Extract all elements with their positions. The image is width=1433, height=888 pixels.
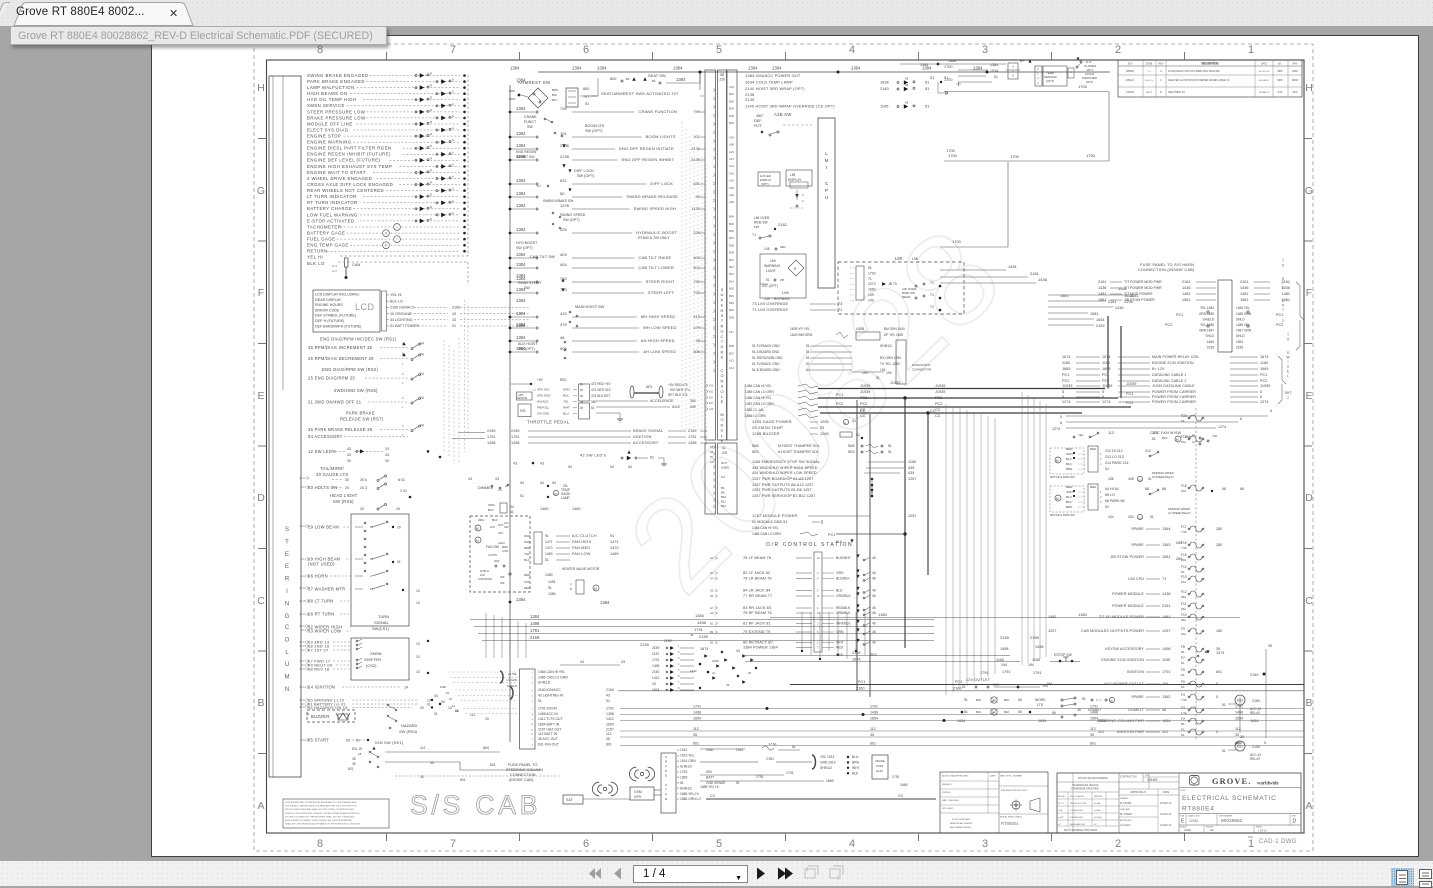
svg-text:1: 1 <box>402 362 404 366</box>
svg-text:R: R <box>430 144 432 148</box>
svg-text:1700: 1700 <box>944 78 952 82</box>
svg-text:1257 PWR OUTPUTS A6-A10 1257: 1257 PWR OUTPUTS A6-A10 1257 <box>752 483 814 487</box>
svg-text:T: T <box>1282 308 1284 312</box>
svg-text:2160: 2160 <box>452 306 460 310</box>
svg-text:1257: 1257 <box>908 514 916 518</box>
svg-text:B26: B26 <box>709 385 714 388</box>
svg-text:A26: A26 <box>729 186 734 190</box>
svg-text:5A: 5A <box>1181 722 1185 726</box>
svg-text:21 2WD ON/4WD OFF 21: 21 2WD ON/4WD OFF 21 <box>308 399 362 404</box>
svg-text:TITLE: TITLE <box>1180 790 1186 792</box>
svg-text:L: L <box>285 650 289 656</box>
svg-text:1581: 1581 <box>1098 298 1106 302</box>
svg-text:1384: 1384 <box>516 597 526 602</box>
svg-text:1481: 1481 <box>1282 292 1290 296</box>
svg-text:26 RPM/DIAG DECREMENT 26: 26 RPM/DIAG DECREMENT 26 <box>308 356 374 361</box>
svg-text:RT600 & 700 ONLY: RT600 & 700 ONLY <box>638 236 670 240</box>
svg-text:2A: 2A <box>712 671 715 675</box>
svg-text:J1939: J1939 <box>860 390 870 394</box>
svg-text:68: 68 <box>1162 487 1166 491</box>
svg-text:C-1: C-1 <box>1147 71 1151 73</box>
svg-text:1: 1 <box>678 645 680 648</box>
svg-text:DEF SYMBOL (FUTURE): DEF SYMBOL (FUTURE) <box>315 314 356 318</box>
svg-text:F8: F8 <box>1181 645 1185 649</box>
svg-text:1384: 1384 <box>851 66 861 71</box>
svg-text:601: 601 <box>870 742 876 746</box>
svg-text:A: A <box>452 162 454 166</box>
svg-text:350: 350 <box>591 400 597 404</box>
svg-text:3: 3 <box>982 44 988 56</box>
svg-text:6: 6 <box>402 372 404 376</box>
svg-text:194: 194 <box>1162 682 1168 686</box>
svg-text:SEE SHEET #3: SEE SHEET #3 <box>1168 91 1185 94</box>
svg-text:BLK: BLK <box>1162 436 1168 440</box>
svg-text:O: O <box>1282 264 1285 268</box>
svg-text:35: 35 <box>1268 644 1272 648</box>
svg-text:BRN: BRN <box>509 89 515 93</box>
svg-text:28 RT TURN: 28 RT TURN <box>308 611 334 616</box>
svg-text:IN.DIM: IN.DIM <box>1058 796 1065 798</box>
svg-text:51: 51 <box>994 75 998 79</box>
svg-text:145: 145 <box>764 247 770 251</box>
svg-text:200828: 200828 <box>601 200 1029 620</box>
svg-text:I: I <box>826 165 827 170</box>
svg-text:V: V <box>1287 365 1290 369</box>
svg-text:91: 91 <box>610 534 614 538</box>
svg-text:SHT3: SHT3 <box>1146 92 1152 94</box>
svg-text:RED: RED <box>836 653 844 657</box>
svg-text:51 MODULE GND 51: 51 MODULE GND 51 <box>752 520 787 524</box>
svg-text:REV: REV <box>1292 816 1297 818</box>
svg-text:112 BATT IN: 112 BATT IN <box>538 732 558 736</box>
svg-text:1485 CAN LO GRN: 1485 CAN LO GRN <box>745 390 774 394</box>
svg-text:1384: 1384 <box>516 106 526 111</box>
svg-text:SHIELD: SHIELD <box>538 681 551 685</box>
svg-text:DATE: DATE <box>990 775 996 778</box>
svg-text:1914 GRN: 1914 GRN <box>680 759 696 763</box>
svg-text:35: 35 <box>870 733 874 737</box>
svg-text:1581: 1581 <box>1090 312 1098 316</box>
svg-text:SHIELD: SHIELD <box>680 765 693 769</box>
svg-text:1498: 1498 <box>1162 647 1170 651</box>
svg-text:1654: 1654 <box>1096 318 1104 322</box>
svg-text:11: 11 <box>531 729 534 731</box>
svg-text:43: 43 <box>726 683 730 687</box>
svg-text:1481: 1481 <box>1098 292 1106 296</box>
svg-text:D: D <box>1160 91 1162 94</box>
svg-text:OTHERWISE SPECIFIED: OTHERWISE SPECIFIED <box>1071 788 1099 791</box>
svg-text:LMI: LMI <box>790 173 795 177</box>
svg-text:601: 601 <box>460 778 466 782</box>
svg-text:1436: 1436 <box>1240 286 1248 290</box>
svg-text:GEAR DISPLAY: GEAR DISPLAY <box>315 298 342 302</box>
svg-text:PC1: PC1 <box>858 680 865 684</box>
svg-text:F: F <box>1306 287 1312 299</box>
svg-text:PC1: PC1 <box>1062 373 1069 377</box>
svg-text:1700: 1700 <box>952 239 962 244</box>
svg-text:2: 2 <box>678 651 680 654</box>
svg-text:WARNING: WARNING <box>764 264 781 268</box>
svg-text:RED: RED <box>836 646 844 650</box>
svg-text:1481: 1481 <box>1182 292 1190 296</box>
svg-text:(OPT): (OPT) <box>761 182 769 186</box>
svg-text:G: G <box>1305 185 1313 197</box>
svg-text:4: 4 <box>849 838 855 850</box>
svg-text:PC1: PC1 <box>955 680 962 684</box>
svg-text:212 HI 212: 212 HI 212 <box>1105 449 1123 453</box>
svg-text:46: 46 <box>872 556 876 560</box>
svg-text:APV: APV <box>1293 63 1298 66</box>
svg-text:43: 43 <box>347 453 351 457</box>
svg-text:G: G <box>257 185 265 197</box>
svg-text:601: 601 <box>1216 670 1222 674</box>
svg-text:601: 601 <box>693 742 699 746</box>
svg-text:F: F <box>258 287 264 299</box>
svg-text:1654: 1654 <box>957 719 965 723</box>
svg-text:1469: 1469 <box>610 552 618 556</box>
svg-text:REAR WHEELS NOT CENTERED: REAR WHEELS NOT CENTERED <box>307 188 384 193</box>
svg-text:GRN 1914: GRN 1914 <box>820 761 836 765</box>
svg-text:A: A <box>452 175 454 179</box>
svg-text:USED: USED <box>721 466 730 470</box>
svg-text:LTS: LTS <box>1037 703 1044 707</box>
svg-text:1274: 1274 <box>1218 425 1226 429</box>
svg-text:A28: A28 <box>729 200 734 204</box>
svg-text:601: 601 <box>490 763 496 767</box>
svg-text:1700: 1700 <box>944 65 952 69</box>
svg-text:ICE (OPT): ICE (OPT) <box>762 284 778 288</box>
svg-text:IGN SW (SK1): IGN SW (SK1) <box>375 740 404 745</box>
svg-text:46: 46 <box>872 611 876 615</box>
svg-text:S: S <box>285 527 289 533</box>
svg-text:CONNECTION: CONNECTION <box>510 773 536 777</box>
svg-text:1436: 1436 <box>1115 306 1123 310</box>
svg-text:435 WNDSHLD WIPER HIGH SPEED: 435 WNDSHLD WIPER HIGH SPEED <box>752 466 818 470</box>
svg-text:BLK: BLK <box>492 518 498 522</box>
svg-text:1412: 1412 <box>690 669 697 673</box>
svg-text:ENG DIAG/RPM INC/DEC SW (RS1): ENG DIAG/RPM INC/DEC SW (RS1) <box>320 336 397 341</box>
svg-text:3: 3 <box>678 657 680 660</box>
svg-text:2136: 2136 <box>691 146 701 151</box>
svg-text:BRN: BRN <box>1066 467 1072 471</box>
svg-text:43: 43 <box>606 694 610 698</box>
svg-text:1469: 1469 <box>545 552 553 556</box>
svg-text:E: E <box>285 564 289 570</box>
svg-text:DATALINK CABLE 1: DATALINK CABLE 1 <box>1152 373 1186 377</box>
svg-text:A14: A14 <box>729 164 734 168</box>
svg-text:REAR STEER: REAR STEER <box>518 281 541 285</box>
svg-text:202: 202 <box>722 451 728 455</box>
svg-text:J1939: J1939 <box>935 384 945 388</box>
svg-text:SWING SPEED HIGH: SWING SPEED HIGH <box>634 206 677 211</box>
svg-text:1257: 1257 <box>1048 629 1056 633</box>
svg-text:A: A <box>452 199 454 203</box>
svg-text:43-4: 43-4 <box>301 628 307 632</box>
svg-text:A: A <box>665 792 667 796</box>
svg-text:180: 180 <box>1216 629 1222 633</box>
svg-text:1160: 1160 <box>996 658 1004 662</box>
svg-text:601: 601 <box>1090 742 1096 746</box>
svg-text:20 3: 20 3 <box>360 486 367 490</box>
svg-text:194: 194 <box>1042 684 1048 688</box>
svg-text:212: 212 <box>1145 449 1151 453</box>
svg-text:113: 113 <box>1152 431 1158 435</box>
svg-text:2: 2 <box>1282 319 1284 323</box>
svg-text:43: 43 <box>736 649 740 653</box>
svg-text:2135: 2135 <box>560 154 570 159</box>
svg-text:20: 20 <box>360 507 364 511</box>
svg-text:1269 BUZZER: 1269 BUZZER <box>752 431 780 436</box>
svg-text:ELECT SYS DIAG: ELECT SYS DIAG <box>307 127 349 132</box>
svg-text:B14: B14 <box>729 279 734 283</box>
svg-text:14: 14 <box>452 704 456 708</box>
svg-text:B07: B07 <box>729 236 734 240</box>
svg-text:1654: 1654 <box>1038 719 1046 723</box>
svg-text:R: R <box>285 577 290 583</box>
svg-text:43: 43 <box>468 477 472 481</box>
svg-text:82 LF JACK 82: 82 LF JACK 82 <box>743 571 770 575</box>
svg-text:E-STOP ACTIVATED: E-STOP ACTIVATED <box>307 218 354 223</box>
svg-text:1471: 1471 <box>610 540 618 544</box>
svg-text:1384: 1384 <box>516 178 526 183</box>
svg-text:2: 2 <box>1100 495 1102 499</box>
svg-text:SW (OPT): SW (OPT) <box>516 246 533 250</box>
svg-text:RX GRN 1290: RX GRN 1290 <box>880 356 901 360</box>
svg-text:508: 508 <box>752 443 759 448</box>
svg-text:435: 435 <box>1128 477 1134 481</box>
svg-text:112: 112 <box>693 727 699 731</box>
svg-text:RED: RED <box>524 586 531 590</box>
svg-text:4: 4 <box>1037 76 1039 80</box>
svg-text:7: 7 <box>450 838 456 850</box>
svg-text:793: 793 <box>693 290 700 295</box>
svg-text:ENG REGEN: ENG REGEN <box>516 150 537 154</box>
svg-text:81 RF JACK 81: 81 RF JACK 81 <box>743 622 771 626</box>
svg-text:REMOVE ALL BURRS: REMOVE ALL BURRS <box>950 822 973 825</box>
svg-text:STEER PRESSURE LOW: STEER PRESSURE LOW <box>307 109 366 114</box>
svg-text:AUX HOIST: AUX HOIST <box>518 342 538 346</box>
svg-text:30: 30 <box>345 478 349 482</box>
svg-text:1498: 1498 <box>1035 645 1043 649</box>
svg-text:707: 707 <box>583 95 589 99</box>
svg-text:1791: 1791 <box>1002 670 1010 674</box>
svg-text:43 LIGHTING IN: 43 LIGHTING IN <box>538 694 564 698</box>
svg-text:LCD DISPLAY INCLUDING:: LCD DISPLAY INCLUDING: <box>315 293 360 297</box>
svg-text:149: 149 <box>868 298 874 302</box>
svg-text:43-2: 43-2 <box>301 485 307 489</box>
svg-text:MAT'L SPEC. NUMBER: MAT'L SPEC. NUMBER <box>1000 775 1023 778</box>
svg-text:CAB TILT RAISE: CAB TILT RAISE <box>638 255 671 260</box>
svg-text:A: A <box>452 126 454 130</box>
svg-text:A8: A8 <box>905 77 909 81</box>
svg-text:DIAGNOSTIC: DIAGNOSTIC <box>912 363 932 367</box>
svg-text:B10: B10 <box>721 495 726 499</box>
svg-text:RED/BLK: RED/BLK <box>836 606 851 610</box>
svg-text:18: 18 <box>370 587 374 591</box>
svg-text:BUZZER: BUZZER <box>311 714 330 719</box>
svg-text:A: A <box>452 90 454 94</box>
svg-text:BRAKE SIGNAL: BRAKE SIGNAL <box>633 429 663 433</box>
svg-text:U: U <box>285 662 289 668</box>
svg-text:R: R <box>430 156 432 160</box>
svg-text:2159: 2159 <box>1096 324 1104 328</box>
svg-text:26K: 26K <box>500 581 505 585</box>
svg-text:1160: 1160 <box>1260 361 1268 365</box>
svg-text:1640 BM GRN: 1640 BM GRN <box>790 333 813 337</box>
svg-text:42-8: 42-8 <box>301 574 307 578</box>
svg-text:1481: 1481 <box>1240 292 1248 296</box>
svg-text:M: M <box>476 527 479 531</box>
svg-text:45: 45 <box>1162 708 1166 712</box>
svg-text:10: 10 <box>385 447 389 451</box>
svg-text:1674: 1674 <box>852 658 860 662</box>
svg-text:B27: B27 <box>709 402 714 405</box>
svg-text:7: 7 <box>817 647 819 650</box>
svg-text:DIFF LOCK: DIFF LOCK <box>574 169 594 173</box>
svg-text:SAT: SAT <box>566 798 574 802</box>
svg-text:A: A <box>1305 800 1312 812</box>
svg-text:37 WASHER MTR: 37 WASHER MTR <box>308 586 345 591</box>
svg-text:R: R <box>665 797 668 801</box>
svg-text:1686 LC GRN: 1686 LC GRN <box>745 414 766 418</box>
svg-text:R: R <box>430 108 432 112</box>
svg-text:194: 194 <box>993 683 999 687</box>
svg-text:1653: 1653 <box>868 288 876 292</box>
svg-text:R: R <box>430 217 432 221</box>
svg-text:194: 194 <box>886 371 892 375</box>
svg-text:ORG/BLK: ORG/BLK <box>836 594 851 598</box>
svg-text:2162: 2162 <box>778 222 788 227</box>
svg-text:04: 04 <box>420 353 424 357</box>
svg-text:B11: B11 <box>721 500 726 504</box>
svg-text:6 01: 6 01 <box>398 478 405 482</box>
svg-text:G6: G6 <box>710 594 714 598</box>
svg-text:1274: 1274 <box>1260 400 1268 404</box>
svg-text:43: 43 <box>347 447 351 451</box>
svg-text:C: C <box>1012 70 1014 73</box>
svg-text:12 SW LED'S: 12 SW LED'S <box>308 449 336 454</box>
svg-text:POWER FROM CARRIER: POWER FROM CARRIER <box>1152 390 1196 394</box>
svg-text:51: 51 <box>585 102 589 106</box>
svg-text:AS A LICENSE OR GRANT OF ANY R: AS A LICENSE OR GRANT OF ANY RIGHTS. ALL… <box>285 819 353 822</box>
svg-text:HIGH: HIGH <box>498 541 505 545</box>
svg-text:G9: G9 <box>710 460 714 464</box>
svg-text:149: 149 <box>868 293 874 297</box>
svg-text:ENGINE HOURS: ENGINE HOURS <box>315 303 343 307</box>
svg-text:91: 91 <box>545 534 549 538</box>
svg-text:GRN: GRN <box>836 630 844 634</box>
svg-text:B13: B13 <box>729 272 734 276</box>
svg-text:RT880E4: RT880E4 <box>1182 806 1215 813</box>
svg-text:S: S <box>665 783 667 787</box>
svg-text:APS SIG: APS SIG <box>537 388 550 392</box>
svg-text:SW (OPT): SW (OPT) <box>518 347 535 351</box>
svg-text:GPS: GPS <box>634 795 642 799</box>
svg-text:OPT): OPT) <box>1086 80 1093 84</box>
svg-text:M: M <box>1056 459 1059 463</box>
svg-text:GROVE WORLDWIDE AND SHALL NOT: GROVE WORLDWIDE AND SHALL NOT BE COPIED … <box>285 808 355 811</box>
svg-text:83 RR JACK 83: 83 RR JACK 83 <box>743 606 771 610</box>
svg-text:50: 50 <box>560 191 565 196</box>
svg-text:9: 9 <box>817 578 819 581</box>
svg-text:30: 30 <box>385 459 389 463</box>
svg-text:SIZE: SIZE <box>1180 816 1185 818</box>
svg-text:BATT: BATT <box>706 776 714 780</box>
svg-text:54: 54 <box>510 505 514 509</box>
svg-text:1791: 1791 <box>756 775 764 779</box>
svg-text:42-9: 42-9 <box>301 663 307 667</box>
svg-text:F5: F5 <box>1181 680 1185 684</box>
svg-text:1913 YEL: 1913 YEL <box>680 754 695 758</box>
svg-text:B07: B07 <box>729 351 734 355</box>
svg-text:1669: 1669 <box>1062 367 1070 371</box>
svg-text:1791: 1791 <box>511 435 519 439</box>
svg-text:F: F <box>385 244 387 248</box>
svg-text:RED: RED <box>1090 485 1097 489</box>
svg-text:792: 792 <box>693 279 700 284</box>
svg-text:2161: 2161 <box>1162 604 1170 608</box>
svg-text:1384: 1384 <box>676 77 686 82</box>
svg-text:1470: 1470 <box>610 546 618 550</box>
svg-text:1685 YEL HI: 1685 YEL HI <box>700 785 719 789</box>
svg-text:1700: 1700 <box>1010 154 1020 159</box>
svg-text:NO/ACC: NO/ACC <box>537 400 550 404</box>
svg-text:29 LOW BEAM: 29 LOW BEAM <box>308 524 339 529</box>
svg-text:C: C <box>1160 79 1162 82</box>
svg-text:2159: 2159 <box>511 429 519 433</box>
svg-text:800: 800 <box>610 77 616 81</box>
svg-text:51 FLYBACK GND: 51 FLYBACK GND <box>752 344 780 348</box>
svg-text:CHECKED: CHECKED <box>1120 809 1131 811</box>
svg-text:42-16: 42-16 <box>299 667 306 671</box>
svg-text:ORG: ORG <box>478 518 484 522</box>
svg-text:6: 6 <box>1240 417 1242 421</box>
svg-text:T: T <box>1282 259 1284 263</box>
svg-text:HAZARD: HAZARD <box>401 723 418 728</box>
svg-text:1384: 1384 <box>695 613 705 618</box>
svg-text:BRN: BRN <box>552 88 558 92</box>
svg-text:PC1: PC1 <box>836 393 843 397</box>
svg-text:G3: G3 <box>710 571 714 575</box>
svg-text:G5: G5 <box>710 589 714 593</box>
svg-text:4: 4 <box>1100 500 1102 504</box>
svg-text:R: R <box>430 181 432 185</box>
svg-text:YEL HI: YEL HI <box>390 293 402 297</box>
svg-text:46: 46 <box>872 622 876 626</box>
svg-text:101: 101 <box>693 134 700 139</box>
svg-text:10A: 10A <box>1181 440 1186 444</box>
svg-text:DT: DT <box>554 492 558 496</box>
svg-text:ACCELERATE: ACCELERATE <box>650 399 674 403</box>
svg-text:G4: G4 <box>710 577 714 581</box>
svg-text:J1939: J1939 <box>1260 384 1270 388</box>
svg-text:B10: B10 <box>729 258 734 262</box>
svg-text:HYD / ELEC: HYD / ELEC <box>942 808 954 810</box>
svg-text:7.5A: 7.5A <box>1181 546 1187 550</box>
svg-text:GRN: GRN <box>563 388 570 392</box>
svg-text:BRN: BRN <box>852 761 860 765</box>
svg-text:7.5A: 7.5A <box>1181 530 1187 534</box>
svg-text:1451: 1451 <box>548 580 556 584</box>
svg-text:1654: 1654 <box>1236 340 1243 344</box>
svg-text:F1: F1 <box>1181 728 1185 732</box>
svg-text:FAN LOW: FAN LOW <box>572 552 591 556</box>
svg-text:1384: 1384 <box>530 614 540 619</box>
svg-text:1195: 1195 <box>1162 658 1170 662</box>
svg-text:GRN 1487: GRN 1487 <box>1199 329 1214 333</box>
svg-text:TURN: TURN <box>378 614 389 619</box>
svg-text:1384: 1384 <box>920 63 928 67</box>
